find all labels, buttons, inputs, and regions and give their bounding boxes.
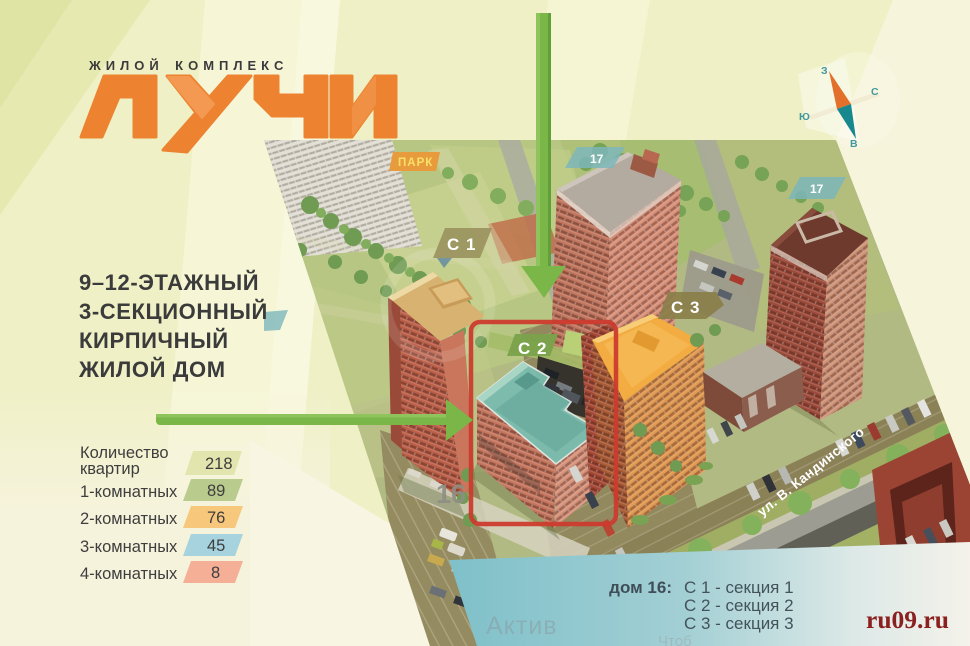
svg-text:3-комнатных: 3-комнатных: [80, 538, 178, 556]
svg-text:8: 8: [211, 564, 220, 582]
svg-text:C 2: C 2: [518, 339, 547, 358]
svg-text:КИРПИЧНЫЙ: КИРПИЧНЫЙ: [79, 328, 229, 353]
svg-text:дом 16:: дом 16:: [609, 578, 672, 597]
svg-text:С 2 - секция 2: С 2 - секция 2: [684, 596, 794, 615]
svg-text:ПАРК: ПАРК: [398, 157, 433, 169]
svg-text:76: 76: [207, 509, 225, 527]
svg-text:Ю: Ю: [799, 111, 810, 123]
svg-text:ru09.ru: ru09.ru: [866, 605, 949, 634]
svg-text:16: 16: [436, 479, 466, 509]
svg-text:С 1 - секция 1: С 1 - секция 1: [684, 578, 794, 597]
svg-text:17: 17: [810, 182, 824, 196]
svg-text:Чтоб: Чтоб: [658, 633, 692, 646]
svg-text:1-комнатных: 1-комнатных: [80, 483, 178, 501]
svg-text:С: С: [871, 86, 879, 98]
svg-text:ЖИЛОЙ ДОМ: ЖИЛОЙ ДОМ: [78, 357, 226, 382]
svg-text:17: 17: [590, 152, 604, 166]
svg-text:2-комнатных: 2-комнатных: [80, 510, 178, 528]
svg-text:C 3: C 3: [671, 298, 700, 317]
svg-text:З: З: [821, 65, 828, 77]
svg-text:Актив: Актив: [486, 612, 558, 640]
svg-text:В: В: [850, 138, 858, 150]
svg-text:45: 45: [207, 537, 225, 555]
svg-text:квартир: квартир: [80, 460, 140, 478]
svg-text:C 1: C 1: [447, 235, 476, 254]
svg-text:9–12-ЭТАЖНЫЙ: 9–12-ЭТАЖНЫЙ: [79, 270, 259, 295]
svg-text:218: 218: [205, 455, 233, 473]
svg-text:С 3 - секция 3: С 3 - секция 3: [684, 614, 794, 633]
svg-text:4-комнатных: 4-комнатных: [80, 565, 178, 583]
svg-text:ЖИЛОЙ КОМПЛЕКС: ЖИЛОЙ КОМПЛЕКС: [88, 58, 288, 73]
svg-text:89: 89: [207, 482, 225, 500]
svg-text:3-СЕКЦИОННЫЙ: 3-СЕКЦИОННЫЙ: [79, 299, 268, 324]
